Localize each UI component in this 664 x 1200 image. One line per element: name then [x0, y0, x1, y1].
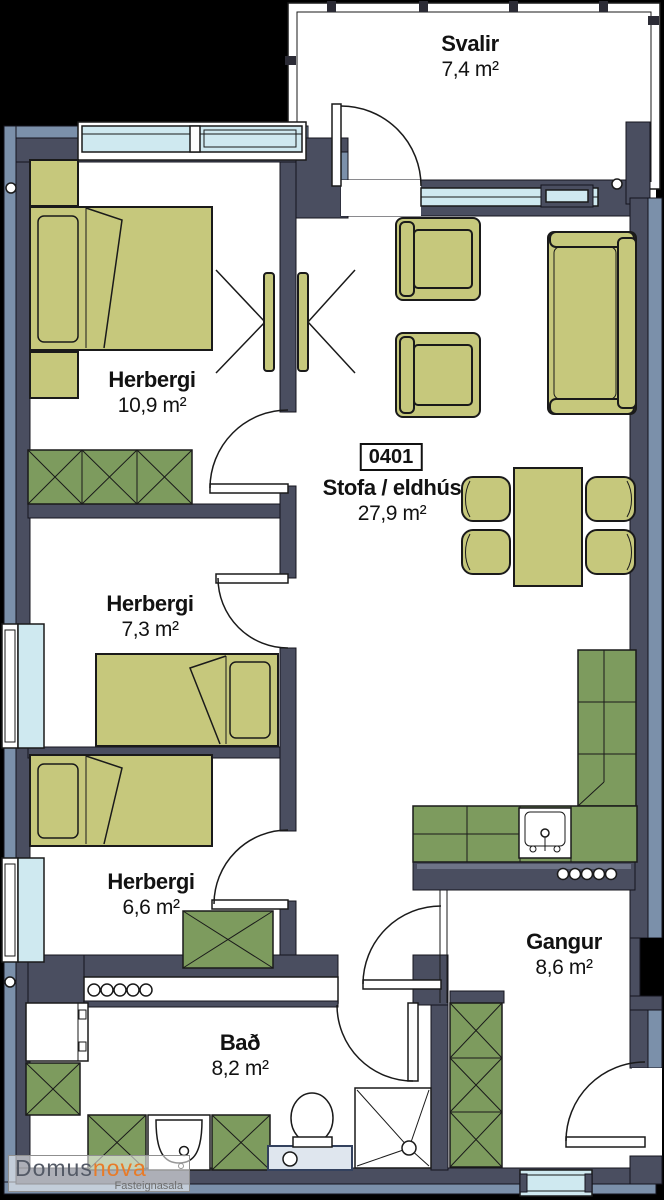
bedroom2-door-leaf — [216, 574, 288, 583]
entry-door-leaf — [566, 1137, 645, 1147]
wall-dot — [5, 977, 15, 987]
balcony-door-leaf — [332, 104, 341, 186]
toilet-cistern — [268, 1146, 352, 1170]
bedroom3-door-leaf — [212, 900, 288, 909]
shower-drain — [402, 1141, 416, 1155]
window-frame — [2, 624, 18, 748]
pipe-dot — [88, 984, 100, 996]
room-name: Herbergi — [107, 868, 194, 895]
bathroom-door-leaf — [408, 1003, 418, 1081]
sofa-back — [618, 238, 636, 408]
room-label-herbergi2: Herbergi 7,3 m² — [106, 590, 193, 643]
agency-logo: Domusnova Fasteignasala — [8, 1155, 190, 1192]
logo-brand-primary: Domus — [15, 1155, 93, 1181]
armchair-back — [400, 337, 414, 413]
bedroom2-furniture — [96, 654, 278, 746]
railing-tick — [509, 1, 518, 12]
faucet — [541, 829, 549, 837]
cooktop-dot — [570, 869, 581, 880]
single-bed — [96, 654, 278, 746]
window-divider — [190, 126, 200, 152]
room-label-bad: Bað 8,2 m² — [211, 1029, 268, 1082]
cooktop-dot — [558, 869, 569, 880]
wardrobe-header — [450, 991, 504, 1003]
entry-niche-outside — [640, 938, 664, 996]
railing-tick — [599, 1, 608, 12]
room-label-herbergi3: Herbergi 6,6 m² — [107, 868, 194, 921]
room-area: 7,3 m² — [106, 617, 193, 643]
pipe-strip-edge — [84, 1001, 338, 1007]
room-area: 8,6 m² — [526, 955, 602, 981]
room-name: Gangur — [526, 928, 602, 955]
corner-column — [626, 122, 650, 204]
armchair-seat — [414, 230, 472, 288]
room-label-herbergi1: Herbergi 10,9 m² — [108, 366, 195, 419]
window-pane-bedroom2 — [18, 624, 44, 748]
dining-chair — [586, 530, 635, 574]
room-label-stofa: Stofa / eldhús 27,9 m² — [323, 474, 462, 527]
room-area: 10,9 m² — [108, 393, 195, 419]
window-bottom-tick — [520, 1174, 527, 1192]
pipe-dot — [101, 984, 113, 996]
logo-brand-secondary: nova — [93, 1155, 147, 1181]
single-bed — [30, 755, 212, 846]
railing-tick — [327, 1, 336, 12]
room-area: 8,2 m² — [211, 1056, 268, 1082]
nightstand — [30, 160, 78, 206]
logo-brand: Domusnova — [15, 1155, 147, 1181]
unit-number-badge: 0401 — [360, 443, 423, 471]
folding-door-panel — [264, 273, 274, 371]
window-bottom-tick — [585, 1174, 592, 1192]
wall-bed2-living — [280, 648, 296, 831]
wall-right-blue — [648, 198, 662, 938]
wall-bath-corner — [28, 955, 84, 1007]
room-name: Herbergi — [108, 366, 195, 393]
glazing-detail-pane — [546, 190, 588, 202]
armchair-seat — [414, 345, 472, 405]
cooktop-dot — [582, 869, 593, 880]
folding-door-panel — [298, 273, 308, 371]
room-area: 7,4 m² — [441, 57, 499, 83]
room-label-gangur: Gangur 8,6 m² — [526, 928, 602, 981]
window-bottom — [520, 1170, 592, 1196]
railing-tick — [648, 16, 659, 25]
wall-dot — [6, 183, 16, 193]
pipe-dot — [114, 984, 126, 996]
gangur-door-leaf — [363, 980, 441, 989]
wall-dot — [612, 179, 622, 189]
entry-recess-wall — [630, 1010, 648, 1068]
wall-bed1-living — [280, 486, 296, 578]
balcony-door-opening — [341, 180, 421, 216]
toilet-bowl — [291, 1093, 333, 1143]
window-bedroom1 — [78, 122, 306, 160]
nightstand — [30, 352, 78, 398]
gangur-wardrobe — [450, 991, 504, 1167]
pipe-dot — [140, 984, 152, 996]
floorplan-stage: Svalir 7,4 m² Herbergi 10,9 m² 0401 Stof… — [0, 0, 664, 1200]
entry-recess-blue — [648, 1010, 662, 1068]
room-area: 6,6 m² — [107, 895, 194, 921]
dining-table — [514, 468, 582, 586]
dining-chair — [586, 477, 635, 521]
entry-niche-wall — [630, 938, 640, 996]
toilet-seat-band — [293, 1137, 332, 1147]
wall-bed1-living — [280, 162, 296, 412]
entry-recess-cap — [630, 996, 662, 1010]
cooktop-dot — [606, 869, 617, 880]
railing-tick — [285, 56, 296, 65]
wall-corner-bottom-right — [630, 1156, 662, 1184]
toilet-button — [283, 1152, 297, 1166]
wall-bed1-bed2 — [28, 504, 280, 518]
floorplan-drawing — [0, 0, 664, 1200]
room-name: Herbergi — [106, 590, 193, 617]
room-area: 27,9 m² — [323, 501, 462, 527]
room-name: Stofa / eldhús — [323, 474, 462, 501]
armchair-back — [400, 222, 414, 296]
kitchen-counter-right — [578, 650, 636, 806]
room-name: Svalir — [441, 30, 499, 57]
window-pane-bedroom3 — [18, 858, 44, 962]
wall-bath-gangur — [431, 1005, 448, 1170]
logo-tagline: Fasteignasala — [15, 1181, 183, 1192]
room-name: Bað — [211, 1029, 268, 1056]
window-frame — [2, 858, 18, 962]
pipe-dot — [127, 984, 139, 996]
bedroom1-door-leaf — [210, 484, 288, 493]
cooktop-dot — [594, 869, 605, 880]
railing-tick — [419, 1, 428, 12]
room-label-svalir: Svalir 7,4 m² — [441, 30, 499, 83]
bedroom1-furniture — [28, 160, 212, 504]
